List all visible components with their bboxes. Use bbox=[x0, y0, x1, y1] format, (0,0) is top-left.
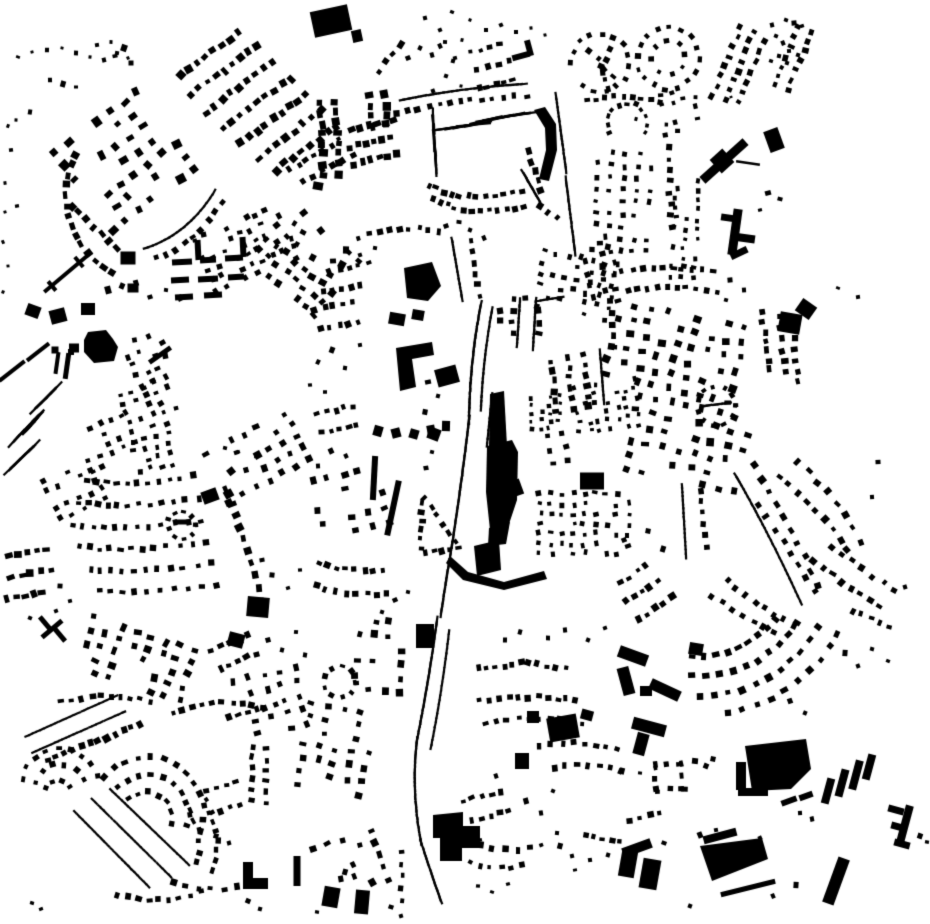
map-viewport bbox=[0, 0, 930, 924]
figure-ground-map-canvas bbox=[0, 0, 930, 924]
